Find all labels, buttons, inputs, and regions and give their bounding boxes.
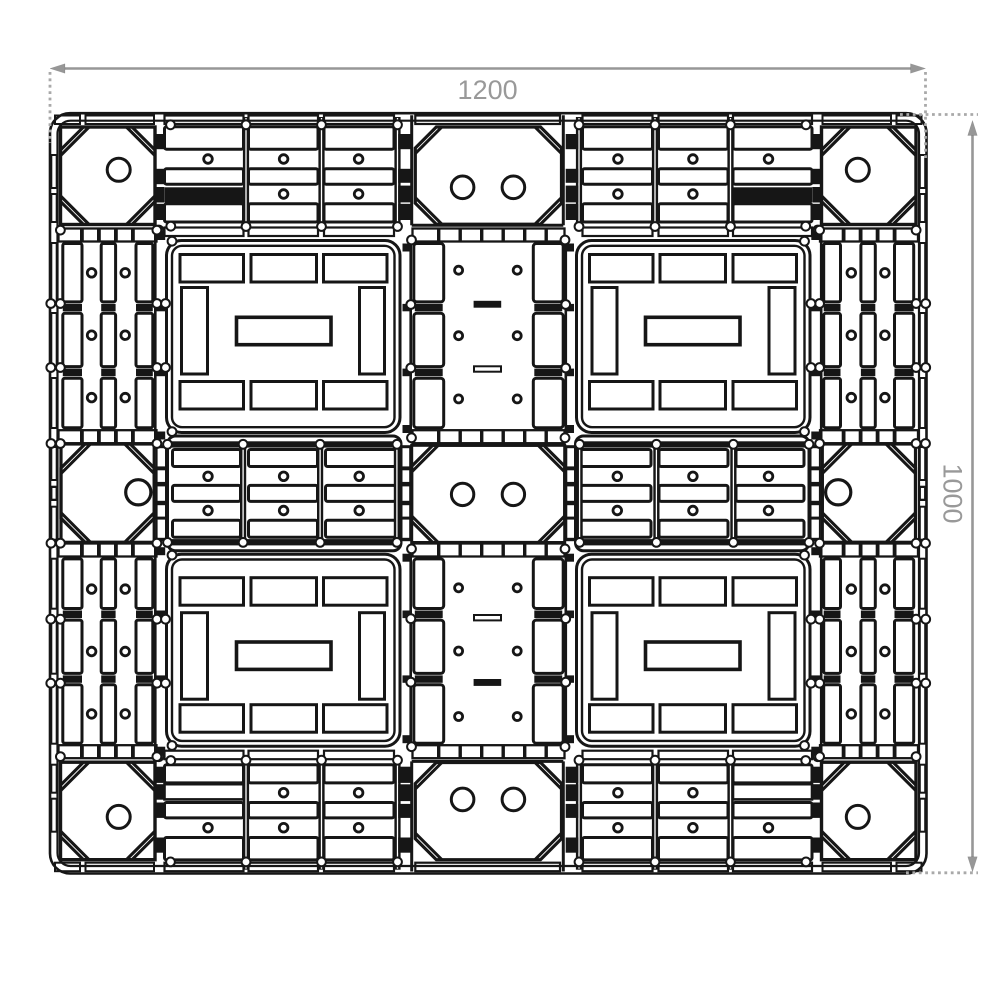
svg-text:1000: 1000 (937, 463, 967, 523)
svg-text:1200: 1200 (458, 75, 518, 105)
